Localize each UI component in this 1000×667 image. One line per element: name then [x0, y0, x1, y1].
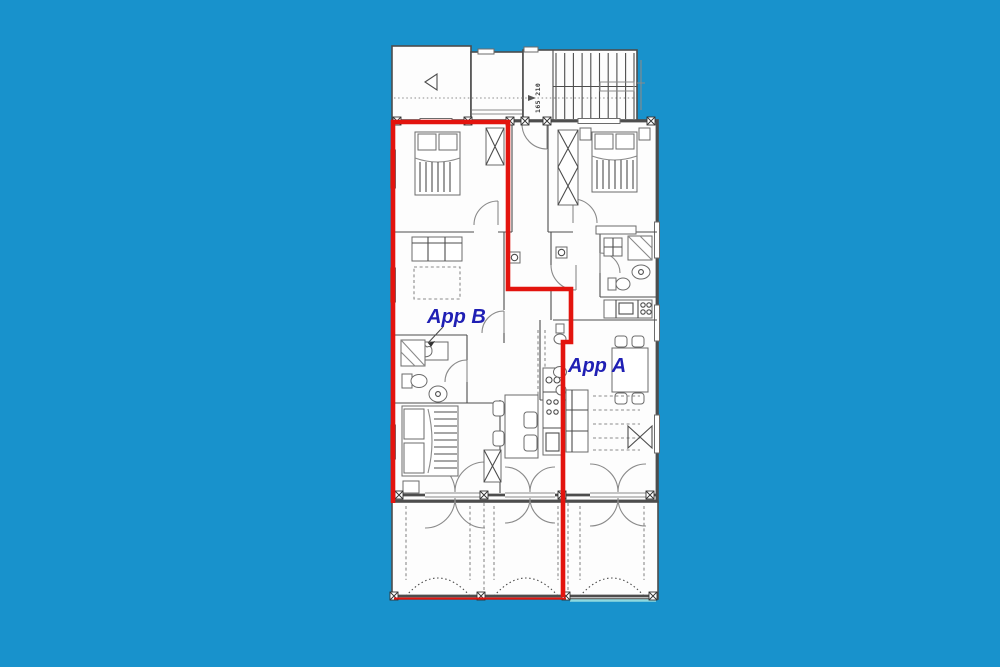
label-app-a: App A — [567, 355, 626, 377]
nightstand-icon — [580, 128, 591, 140]
chair-icon — [632, 393, 644, 404]
entry-porch-area — [471, 52, 523, 121]
chair-icon — [615, 393, 627, 404]
nightstand-icon — [639, 128, 650, 140]
terrace-area — [392, 502, 658, 599]
stair-dim-tick — [637, 60, 645, 110]
meter-box-icon — [556, 247, 567, 258]
wardrobe-icon — [558, 130, 578, 205]
sofa-icon — [412, 237, 462, 261]
chair-icon — [524, 412, 537, 428]
chair-icon — [632, 336, 644, 347]
side-table-icon — [403, 481, 419, 493]
stair-dimension-text: 165 210 — [534, 83, 542, 113]
sideboard-icon — [596, 226, 636, 234]
chair-icon — [524, 435, 537, 451]
floor-plan: 165 210 — [380, 36, 670, 614]
kitchen-a — [604, 300, 652, 318]
sofa-icon — [566, 390, 588, 452]
garage-area — [392, 46, 471, 121]
screenshot-canvas: 165 210 — [0, 0, 1000, 667]
label-app-b: App B — [426, 306, 486, 328]
toilet-icon — [616, 278, 630, 290]
window-tick — [478, 49, 494, 54]
chair-icon — [493, 431, 504, 446]
toilet-tank — [608, 278, 616, 290]
chair-icon — [615, 336, 627, 347]
meter-box-icon — [509, 252, 520, 263]
washbasin-icon — [632, 265, 650, 279]
washbasin-icon — [429, 386, 447, 402]
toilet-icon — [411, 375, 427, 388]
chair-icon — [493, 401, 504, 416]
toilet-tank — [556, 324, 564, 333]
window-tick — [524, 47, 538, 52]
